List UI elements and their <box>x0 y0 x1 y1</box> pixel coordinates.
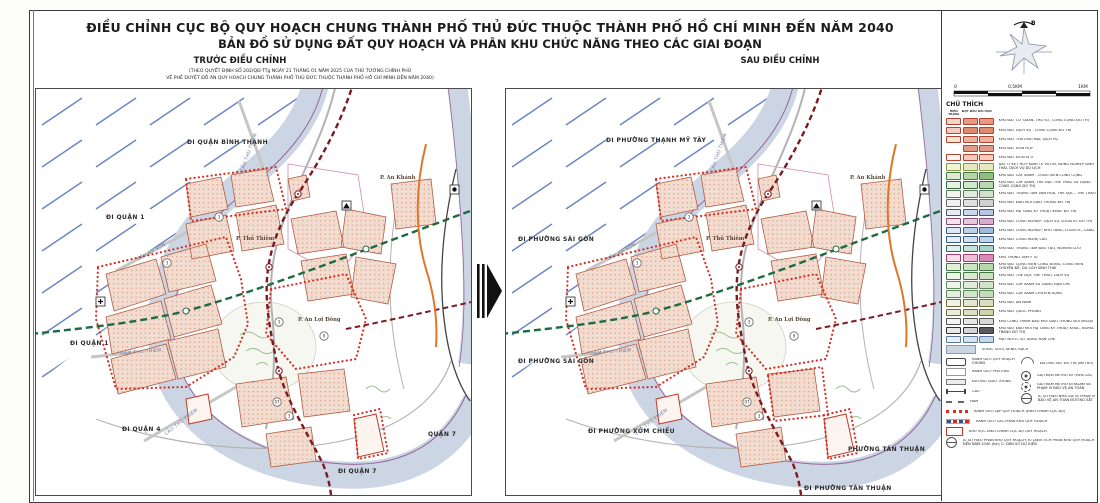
sheet-frame-inner <box>33 10 34 501</box>
legend-symbol-label: HẦM <box>970 400 978 404</box>
legend-row-label: KHU ĐẤT ĐẦU MỐI HẠ TẦNG KỸ THUẬT KHÁC, N… <box>999 327 1097 335</box>
legend-rows: KHU ĐẤT CƠ QUAN, TRỤ SỞ, CÔNG CỘNG ĐÔ TH… <box>946 117 1096 344</box>
before-after-arrow <box>477 258 503 324</box>
legend-swatch <box>979 236 994 244</box>
legend-row: KHU CÔNG TRÌNH ĐẦU MỐI GIAO THÔNG ĐỐI NG… <box>946 317 1096 326</box>
legend-swatch <box>963 218 978 226</box>
ward-label: P. Thủ Thiêm <box>706 235 745 242</box>
legend-swatch <box>963 318 978 326</box>
rect2-glyph <box>946 368 966 376</box>
legend-swatch <box>946 218 961 226</box>
ward-label: P. Thủ Thiêm <box>236 235 275 242</box>
legend-symbol-label: RANH GIỚI PHƯỜNG <box>972 370 1009 374</box>
map-label: ĐI QUẬN 1 <box>70 340 109 347</box>
legend-row: KHU ĐẤT CÔNG NGHỆ CAO <box>946 235 1096 244</box>
legend-symbol-label: GA/TRẠM METRO ĐI TRÊN CAO <box>1037 374 1092 378</box>
legend-symbol-label: RANH GIỚI QUY HOẠCH CHUNG <box>972 358 1021 366</box>
legend-row: KHU ĐẤT ĐẦU MỐI GIAO THÔNG ĐÔ THỊ <box>946 199 1096 208</box>
map-label: QUẬN 7 <box>428 431 456 438</box>
legend-symbol-row: RANH GIỚI QUY HOẠCH CHUNG <box>946 357 1021 366</box>
legend-symbol-row: CẦU <box>946 387 1021 396</box>
legend-symbol-row: GA/TRẠM METRO ĐI NGẦM VÀ PHẠM VI BẢO VỆ … <box>1021 382 1096 392</box>
map-after-svg: ĐI PHƯỜNG THẠNH MỸ TÂY ĐI PHƯỜNG SÀI GÒN… <box>506 89 941 495</box>
zone-number: 3 <box>688 215 691 220</box>
legend-row-label: KHU ĐẤT CÂY XANH - CÔNG VIÊN CÔNG CỘNG <box>999 174 1083 178</box>
legend-swatch <box>963 290 978 298</box>
legend-swatch <box>963 309 978 317</box>
legend-river-row: SÔNG, SUỐI, KÊNH, RẠCH <box>946 345 1096 354</box>
map-artwork <box>36 89 471 495</box>
legend-swatch <box>946 154 961 162</box>
legend-swatch <box>963 181 978 189</box>
legend-symbol-row: RANH GIỚI PHƯỜNG <box>946 367 1021 376</box>
legend-row: KHU ĐẤT CÔNG NGHIỆP, DỊCH VỤ, LOGISTIC Đ… <box>946 217 1096 226</box>
legend-row-label: KHU ĐẤT THƯƠNG MẠI, DỊCH VỤ <box>999 138 1058 142</box>
legend-symbol-label: ĐƯỜNG SẮT ĐÔ THỊ (METRO) <box>1040 362 1093 366</box>
legend-swatch <box>963 199 978 207</box>
map-label: ĐI QUẬN 4 <box>122 426 161 433</box>
scale-bar: 0 0,5KM 1KM <box>950 82 1096 100</box>
legend-swatch <box>979 245 994 253</box>
legend-swatch <box>963 145 978 153</box>
legend-row-label: KHU ĐẤT CÔNG NGHIỆP, KHO TÀNG, LOGISTIC,… <box>999 229 1095 233</box>
legend-row: KHU TRUNG TÂM Y TẾ <box>946 253 1096 262</box>
road-glyph <box>946 379 966 385</box>
scale-zero: 0 <box>954 84 957 90</box>
legend-symbol-row: HẦM <box>946 397 1021 406</box>
legend-row-label: MẶT NƯỚC SỬ DỤNG HẠN CHẾ <box>999 338 1056 342</box>
zone-number: 3 <box>748 320 751 325</box>
legend-swatch <box>979 172 994 180</box>
compass-rose: B <box>988 16 1060 78</box>
legend-column-headers: HIỆN TRẠNG ĐỢT ĐẦU DÀI HẠN <box>946 110 993 116</box>
legend: CHÚ THÍCH HIỆN TRẠNG ĐỢT ĐẦU DÀI HẠN KHU… <box>946 101 1096 499</box>
map-label: ĐI PHƯỜNG SÀI GÒN <box>518 236 594 243</box>
map-label: ĐI PHƯỜNG XÓM CHIẾU <box>588 427 675 435</box>
legend-swatch <box>979 181 994 189</box>
legend-swatch <box>946 327 961 335</box>
zone-number: 3 <box>278 320 281 325</box>
legend-row-label: KHU ĐẤT ĐẦU MỐI GIAO THÔNG ĐÔ THỊ <box>999 201 1071 205</box>
abc-glyph <box>946 437 957 448</box>
legend-swatch <box>979 336 994 344</box>
legend-swatch <box>979 263 994 271</box>
ward-label: P. An Khánh <box>850 174 886 181</box>
legend-row: KHU ĐẤT THỂ DỤC THỂ THAO, DỊCH VỤ <box>946 271 1096 280</box>
legend-row-label: KHU ĐẤT CÔNG VIÊN CỘNG ĐỒNG, CÔNG VIÊN C… <box>999 263 1097 271</box>
map-sheet: ĐIỀU CHỈNH CỤC BỘ QUY HOẠCH CHUNG THÀNH … <box>0 0 1100 503</box>
legend-row: KHU ĐẤT CÂY XANH - CÔNG VIÊN CÔNG CỘNG <box>946 171 1096 180</box>
legend-symbol-label: CẦU <box>972 390 980 394</box>
legend-row-label: KHU ĐẤT TRUNG TÂM ĐÀO TẠO, NGHIÊN CỨU <box>999 247 1081 251</box>
north-label: B <box>1031 20 1036 27</box>
legend-row-label: KHU ĐẤT CÔNG NGHỆ CAO <box>999 238 1048 242</box>
legend-symbols-full: RANH GIỚI LẬP QUY HOẠCH (ĐIỀU CHỈNH CỤC … <box>946 407 1096 448</box>
legend-symbol-row: ĐƯỜNG SẮT ĐÔ THỊ (METRO) <box>1021 357 1096 370</box>
legend-symbol-label: GA/TRẠM METRO ĐI NGẦM VÀ PHẠM VI BẢO VỆ … <box>1037 383 1096 391</box>
legend-row-label: KHU ĐẤT CƠ QUAN, TRỤ SỞ, CÔNG CỘNG ĐÔ TH… <box>999 119 1089 123</box>
legend-row: KHU ĐẤT TRUNG TÂM ĐÀO TẠO, NGHIÊN CỨU <box>946 244 1096 253</box>
legend-row-label: KHU ĐẤT THỂ DỤC THỂ THAO, DỊCH VỤ <box>999 274 1070 278</box>
legend-row: KHU ĐẤT CÂY XANH, THỂ DỤC THỂ THAO SỬ DỤ… <box>946 180 1096 189</box>
legend-symbol-label: SÔNG, SUỐI, KÊNH, RẠCH <box>982 348 1028 352</box>
map-label: ĐI PHƯỜNG SÀI GÒN <box>518 358 594 365</box>
zone-number: 97 <box>744 400 750 405</box>
legend-row-label: KHU ĐẤT CÂY XANH, THỂ DỤC THỂ THAO SỬ DỤ… <box>999 181 1097 189</box>
legend-swatch <box>946 199 961 207</box>
legend-swatch <box>946 318 961 326</box>
legend-row: MẶT NƯỚC SỬ DỤNG HẠN CHẾ <box>946 335 1096 344</box>
legend-symbol-row: KHU VỰC ĐIỀU CHỈNH CỤC BỘ QUY HOẠCH <box>946 427 1096 436</box>
legend-swatch <box>963 245 978 253</box>
legend-swatch <box>979 190 994 198</box>
legend-row: KHU ĐẤT DỊCH VỤ - CÔNG CỘNG ĐÔ THỊ <box>946 126 1096 135</box>
legend-col-hien-trang: HIỆN TRẠNG <box>946 110 962 116</box>
ward-label: P. An Lợi Đông <box>768 316 811 323</box>
legend-swatch <box>979 290 994 298</box>
legend-swatch <box>963 236 978 244</box>
legend-row-label: KHU ĐẤT CÂY XANH CHUYÊN DỤNG <box>999 292 1063 296</box>
station-glyph <box>1021 371 1031 381</box>
subzone-glyph <box>946 419 970 424</box>
before-label: TRƯỚC ĐIỀU CHỈNH <box>120 56 360 66</box>
legend-swatch <box>979 199 994 207</box>
scale-mid: 0,5KM <box>1008 84 1022 90</box>
legend-row-label: ĐẤT Ở KẾT HỢP KINH TẾ VƯỜN, NÔNG NGHIỆP … <box>999 163 1097 171</box>
legend-symbol-row: SÔNG, SUỐI, KÊNH, RẠCH <box>946 345 1096 354</box>
legend-symbol-label: RANH GIỚI CÁC PHÂN KHU QUY HOẠCH <box>976 420 1047 424</box>
legend-row: KHU ĐẤT TRUNG TÂM VĂN HÓA, THỂ DỤC - THỂ… <box>946 190 1096 199</box>
legend-symbol-row: A: SỐ HIỆU NHÀ GA; B: PHẠM VI BẢO VỆ AN … <box>1021 393 1096 404</box>
map-artwork <box>506 89 941 495</box>
legend-swatch <box>963 127 978 135</box>
legend-col-dot-dau: ĐỢT ĐẦU <box>962 110 978 116</box>
legend-symbol-row: RANH GIỚI CÁC PHÂN KHU QUY HOẠCH <box>946 417 1096 426</box>
zone-number: 3 <box>758 414 761 419</box>
legend-row: KHU ĐẤT CÔNG NGHIỆP, KHO TÀNG, LOGISTIC,… <box>946 226 1096 235</box>
legend-swatch <box>979 327 994 335</box>
legend-swatch <box>963 272 978 280</box>
legend-swatch <box>979 209 994 217</box>
ward-label: P. An Lợi Đông <box>298 316 341 323</box>
bridge-glyph <box>946 389 966 394</box>
legend-row: KHU ĐẤT CÂY XANH CHUYÊN DỤNG <box>946 290 1096 299</box>
legend-swatch <box>946 299 961 307</box>
legend-row-label: KHU CÔNG TRÌNH ĐẦU MỐI GIAO THÔNG ĐỐI NG… <box>999 320 1093 324</box>
legend-row: KHU ĐẤT AN NINH <box>946 299 1096 308</box>
legend-swatch <box>979 281 994 289</box>
legend-swatch <box>946 309 961 317</box>
ward-label: P. An Khánh <box>380 174 416 181</box>
legend-swatch <box>963 172 978 180</box>
zone-number: 9 <box>323 334 326 339</box>
legend-swatch <box>979 118 994 126</box>
legend-swatch <box>979 318 994 326</box>
legend-symbol-label: RANH GIỚI LẬP QUY HOẠCH (ĐIỀU CHỈNH CỤC … <box>974 410 1065 414</box>
legend-swatch <box>963 336 978 344</box>
decision-note-line2: VỀ PHÊ DUYỆT ĐỒ ÁN QUY HOẠCH CHUNG THÀNH… <box>110 76 490 81</box>
legend-swatch <box>946 209 961 217</box>
legend-swatch <box>979 309 994 317</box>
after-label: SAU ĐIỀU CHỈNH <box>660 56 900 66</box>
map-label: ĐI PHƯỜNG THẠNH MỸ TÂY <box>606 137 706 144</box>
decision-note-line1: (THEO QUYẾT ĐỊNH SỐ 202/QĐ-TTg NGÀY 21 T… <box>110 69 490 74</box>
redrect-glyph <box>946 427 963 436</box>
legend-row-label: KHU ĐẤT ĐƠN VỊ Ở <box>999 156 1034 160</box>
legend-row: KHU ĐẤT CÔNG VIÊN CỘNG ĐỒNG, CÔNG VIÊN C… <box>946 262 1096 271</box>
legend-swatch <box>946 254 961 262</box>
reddots-glyph <box>946 410 968 413</box>
legend-symbol-label: KHU VỰC ĐIỀU CHỈNH CỤC BỘ QUY HOẠCH <box>969 430 1047 434</box>
legend-symbol-row: ĐƯỜNG GIAO THÔNG <box>946 377 1021 386</box>
legend-symbols-col-a: RANH GIỚI QUY HOẠCH CHUNGRANH GIỚI PHƯỜN… <box>946 356 1021 406</box>
legend-symbols-col-b: ĐƯỜNG SẮT ĐÔ THỊ (METRO)GA/TRẠM METRO ĐI… <box>1021 356 1096 406</box>
legend-symbol-label: A: SỐ HIỆU NHÀ GA; B: PHẠM VI BẢO VỆ AN … <box>1038 395 1096 403</box>
legend-swatch <box>963 299 978 307</box>
legend-swatch <box>946 336 961 344</box>
zone-number: 3 <box>166 261 169 266</box>
zone-number: 97 <box>274 400 280 405</box>
legend-swatch <box>946 272 961 280</box>
legend-row-label: KHU TRUNG TÂM Y TẾ <box>999 256 1038 260</box>
map-label: PHƯỜNG TÂN THUẬN <box>848 446 925 453</box>
legend-swatch <box>946 163 961 171</box>
legend-swatch <box>946 127 961 135</box>
legend-swatch <box>979 254 994 262</box>
legend-swatch <box>946 181 961 189</box>
legend-swatch <box>963 281 978 289</box>
page-subtitle: BẢN ĐỒ SỬ DỤNG ĐẤT QUY HOẠCH VÀ PHÂN KHU… <box>60 37 920 51</box>
zone-number: 9 <box>793 334 796 339</box>
legend-swatch <box>946 263 961 271</box>
legend-swatch <box>946 245 961 253</box>
map-label: ĐI PHƯỜNG TÂN THUẬN <box>804 485 892 492</box>
legend-swatch <box>979 136 994 144</box>
legend-row: KHU ĐẤT HẠ TẦNG KỸ THUẬT KHÁC ĐÔ THỊ <box>946 208 1096 217</box>
legend-row: KHU ĐẤT HỖN HỢP <box>946 144 1096 153</box>
legend-symbol-label: A: SỐ HIỆU PHÂN KHU QUY HOẠCH; B: DIỆN T… <box>963 439 1096 447</box>
legend-col-dai-han: DÀI HẠN <box>977 110 993 116</box>
legend-swatch <box>963 327 978 335</box>
legend-title: CHÚ THÍCH <box>946 101 1096 108</box>
legend-row: ĐẤT Ở KẾT HỢP KINH TẾ VƯỜN, NÔNG NGHIỆP … <box>946 162 1096 171</box>
legend-row: KHU ĐẤT ĐẦU MỐI HẠ TẦNG KỸ THUẬT KHÁC, N… <box>946 326 1096 335</box>
legend-swatch <box>979 154 994 162</box>
legend-swatch <box>963 209 978 217</box>
legend-row-label: KHU ĐẤT HỖN HỢP <box>999 147 1034 151</box>
legend-swatch <box>946 236 961 244</box>
legend-symbol-columns: RANH GIỚI QUY HOẠCH CHUNGRANH GIỚI PHƯỜN… <box>946 356 1096 406</box>
legend-swatch <box>946 190 961 198</box>
legend-swatch <box>979 299 994 307</box>
legend-symbol-row: RANH GIỚI LẬP QUY HOẠCH (ĐIỀU CHỈNH CỤC … <box>946 407 1096 416</box>
legend-swatch <box>979 227 994 235</box>
legend-row: KHU ĐẤT ĐƠN VỊ Ở <box>946 153 1096 162</box>
map-label: ĐI QUẬN 7 <box>338 468 377 475</box>
legend-swatch <box>946 136 961 144</box>
scale-end: 1KM <box>1078 84 1088 90</box>
map-label: ĐI QUẬN 1 <box>106 214 145 221</box>
map-before-svg: ĐI QUẬN BÌNH THẠNH ĐI QUẬN 1 ĐI QUẬN 1 Đ… <box>36 89 471 495</box>
legend-row-label: KHU ĐẤT QUỐC PHÒNG <box>999 310 1042 314</box>
legend-row-label: KHU ĐẤT HẠ TẦNG KỸ THUẬT KHÁC ĐÔ THỊ <box>999 210 1077 214</box>
tunnel-glyph <box>946 401 964 403</box>
zone-number: 3 <box>288 414 291 419</box>
legend-row-label: KHU ĐẤT TRUNG TÂM VĂN HÓA, THỂ DỤC - THỂ… <box>999 192 1096 196</box>
page-title: ĐIỀU CHỈNH CỤC BỘ QUY HOẠCH CHUNG THÀNH … <box>60 20 920 35</box>
legend-swatch <box>946 118 961 126</box>
legend-swatch <box>963 163 978 171</box>
zone-number: 3 <box>636 261 639 266</box>
legend-row: KHU ĐẤT CÂY XANH SỬ DỤNG HẠN CHẾ <box>946 281 1096 290</box>
legend-swatch <box>963 190 978 198</box>
legend-row: KHU ĐẤT CƠ QUAN, TRỤ SỞ, CÔNG CỘNG ĐÔ TH… <box>946 117 1096 126</box>
legend-swatch <box>946 172 961 180</box>
legend-row: KHU ĐẤT THƯƠNG MẠI, DỊCH VỤ <box>946 135 1096 144</box>
river-glyph <box>946 345 976 354</box>
legend-swatch <box>963 118 978 126</box>
legend-row-label: KHU ĐẤT CÔNG NGHIỆP, DỊCH VỤ, LOGISTIC Đ… <box>999 220 1092 224</box>
legend-row-label: KHU ĐẤT DỊCH VỤ - CÔNG CỘNG ĐÔ THỊ <box>999 129 1072 133</box>
legend-row-label: KHU ĐẤT CÂY XANH SỬ DỤNG HẠN CHẾ <box>999 283 1071 287</box>
legend-symbol-label: ĐƯỜNG GIAO THÔNG <box>972 380 1011 384</box>
legend-swatch <box>979 127 994 135</box>
map-after: ĐI PHƯỜNG THẠNH MỸ TÂY ĐI PHƯỜNG SÀI GÒN… <box>505 88 942 496</box>
legend-row: KHU ĐẤT QUỐC PHÒNG <box>946 308 1096 317</box>
abc-glyph <box>1021 393 1032 404</box>
legend-symbol-row: A: SỐ HIỆU PHÂN KHU QUY HOẠCH; B: DIỆN T… <box>946 437 1096 448</box>
legend-swatch <box>979 272 994 280</box>
legend-row-label: KHU ĐẤT AN NINH <box>999 301 1032 305</box>
stationu-glyph <box>1021 382 1031 392</box>
legend-swatch <box>946 290 961 298</box>
metro-glyph <box>1018 354 1036 372</box>
legend-symbol-row: GA/TRẠM METRO ĐI TRÊN CAO <box>1021 371 1096 381</box>
legend-swatch <box>963 263 978 271</box>
legend-swatch <box>963 254 978 262</box>
map-before: ĐI QUẬN BÌNH THẠNH ĐI QUẬN 1 ĐI QUẬN 1 Đ… <box>35 88 472 496</box>
legend-swatch <box>963 154 978 162</box>
legend-swatch <box>946 281 961 289</box>
legend-swatch <box>963 136 978 144</box>
legend-swatch <box>946 227 961 235</box>
legend-swatch <box>979 218 994 226</box>
rect1-glyph <box>946 358 966 366</box>
legend-swatch <box>979 145 994 153</box>
legend-swatch <box>979 163 994 171</box>
zone-number: 3 <box>218 215 221 220</box>
legend-swatch <box>963 227 978 235</box>
